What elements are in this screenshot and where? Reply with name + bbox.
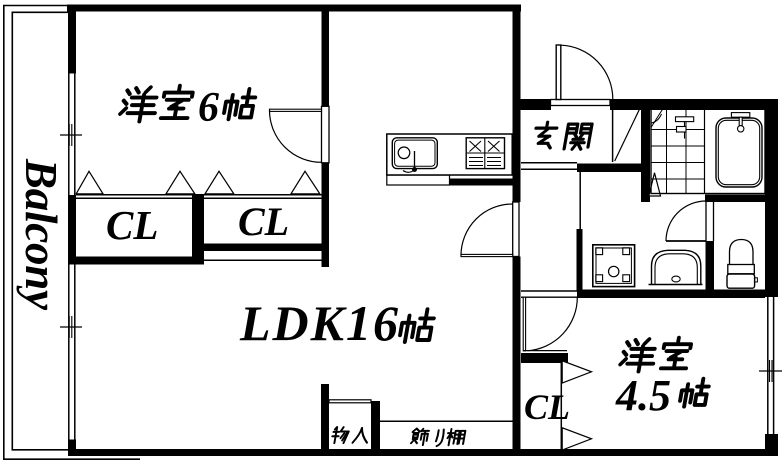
svg-text:LDK16: LDK16 (239, 295, 398, 351)
svg-text:4.5: 4.5 (615, 371, 671, 420)
svg-text:6: 6 (198, 85, 219, 131)
svg-text:CL: CL (524, 387, 570, 427)
svg-text:CL: CL (106, 202, 158, 248)
svg-text:Balcony: Balcony (16, 158, 66, 311)
svg-text:CL: CL (238, 199, 289, 244)
